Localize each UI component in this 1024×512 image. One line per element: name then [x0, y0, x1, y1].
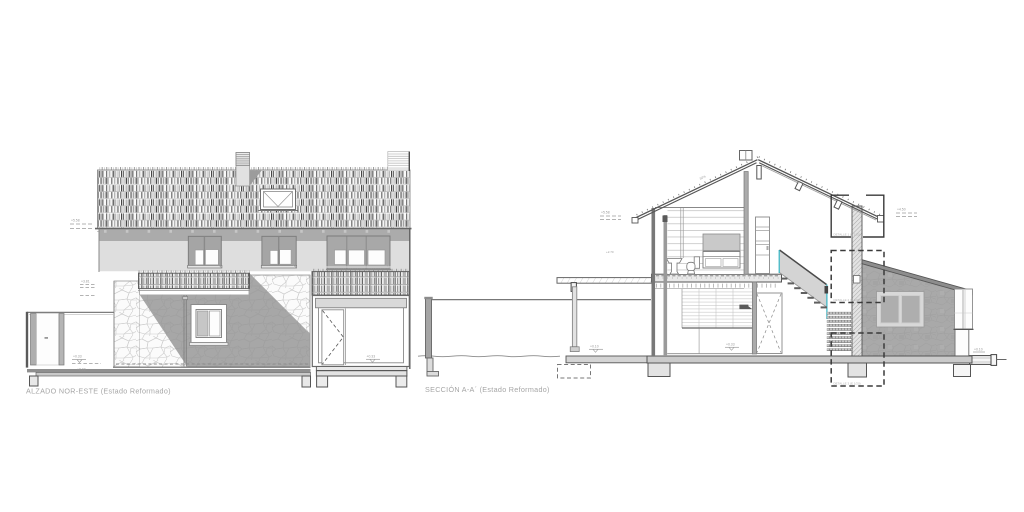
svg-text:+0.33: +0.33: [726, 343, 735, 347]
svg-text:+0.10: +0.10: [590, 345, 599, 349]
svg-text:ALZADO NOR-ESTE (Estado Refor: ALZADO NOR-ESTE (Estado Reformado): [26, 387, 171, 396]
svg-text:+5.58: +5.58: [71, 219, 80, 223]
svg-text:+5.58: +5.58: [601, 211, 610, 215]
svg-text:+4.50: +4.50: [897, 208, 906, 212]
svg-text:+0.00: +0.00: [77, 368, 86, 372]
svg-text:DETALLE 2 (E 1/20): DETALLE 2 (E 1/20): [834, 298, 861, 302]
svg-text:+0.33: +0.33: [367, 355, 376, 359]
svg-text:DETALLE 1 (E 1/20): DETALLE 1 (E 1/20): [834, 233, 861, 237]
svg-text:DETALLE 3 (E 1/20): DETALLE 3 (E 1/20): [834, 382, 861, 386]
svg-text:+3.81: +3.81: [81, 280, 90, 284]
svg-text:+2.70: +2.70: [606, 250, 614, 254]
svg-text:+0.10: +0.10: [974, 348, 983, 352]
svg-text:SECCIÓN A-A´ (Estado Reformad: SECCIÓN A-A´ (Estado Reformado): [425, 385, 550, 394]
svg-text:+0.33: +0.33: [73, 355, 82, 359]
